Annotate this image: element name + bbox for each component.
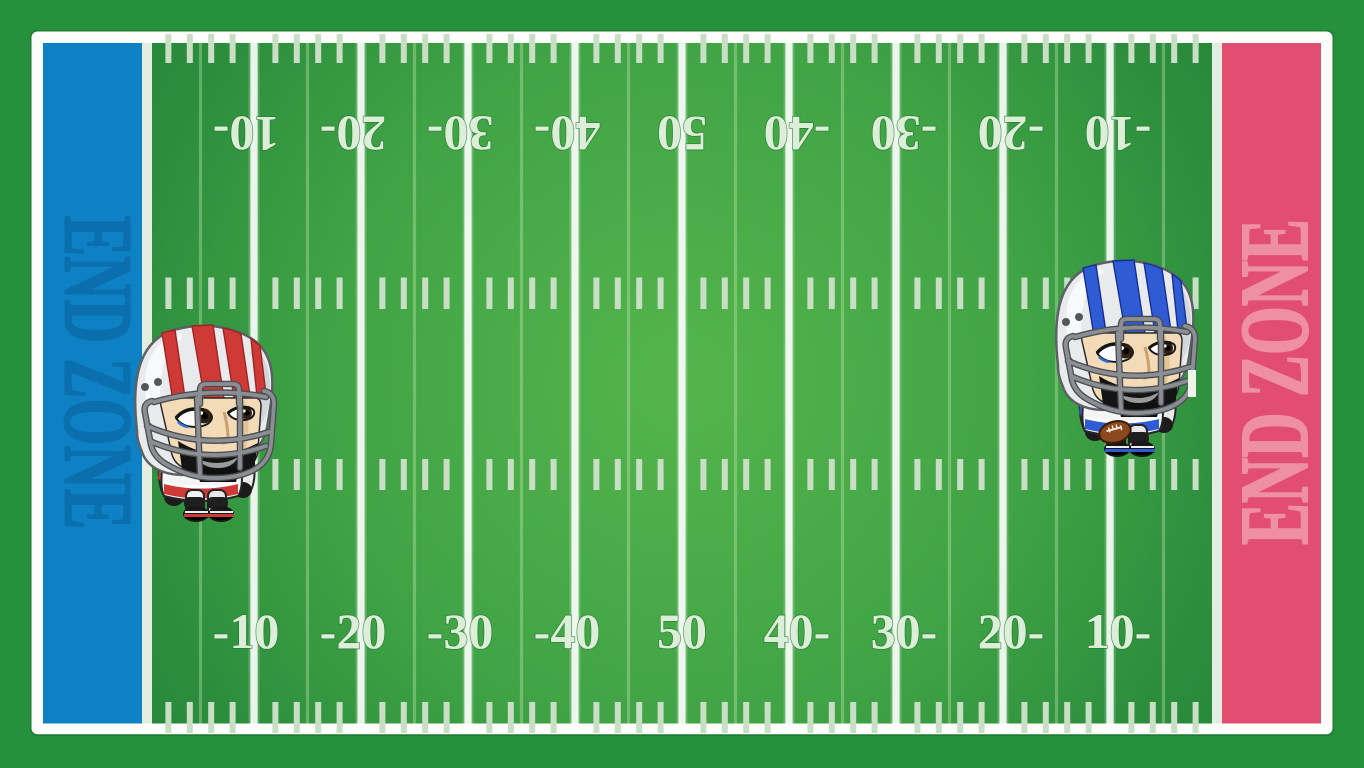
svg-text:-20: -20: [320, 603, 387, 659]
svg-text:20-: 20-: [978, 603, 1045, 659]
svg-text:END ZONE: END ZONE: [1220, 219, 1328, 545]
svg-text:END ZONE: END ZONE: [44, 216, 152, 529]
svg-text:-10: -10: [213, 603, 280, 659]
svg-text:50: 50: [657, 106, 707, 162]
svg-text:-30: -30: [871, 106, 938, 162]
svg-text:40-: 40-: [764, 603, 831, 659]
svg-text:10-: 10-: [213, 106, 280, 162]
svg-text:10-: 10-: [1085, 603, 1152, 659]
svg-text:-10: -10: [1085, 106, 1152, 162]
svg-text:50: 50: [657, 603, 707, 659]
svg-text:-20: -20: [978, 106, 1045, 162]
svg-text:-40: -40: [534, 603, 601, 659]
svg-text:-30: -30: [427, 603, 494, 659]
svg-text:-40: -40: [764, 106, 831, 162]
svg-text:40-: 40-: [534, 106, 601, 162]
svg-text:20-: 20-: [320, 106, 387, 162]
svg-text:30-: 30-: [427, 106, 494, 162]
svg-text:30-: 30-: [871, 603, 938, 659]
